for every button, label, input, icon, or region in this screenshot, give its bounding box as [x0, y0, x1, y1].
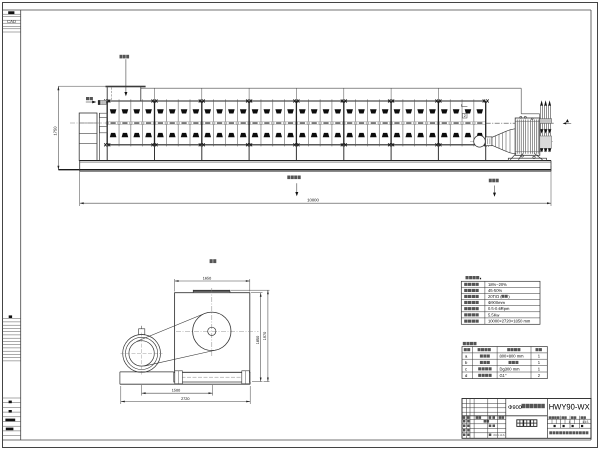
svg-text:10000: 10000	[307, 197, 319, 202]
svg-text:2720: 2720	[181, 397, 189, 401]
svg-text:1850: 1850	[256, 336, 260, 344]
svg-text:HWY90-WX: HWY90-WX	[549, 403, 591, 412]
svg-text:5.5Kw: 5.5Kw	[488, 312, 499, 317]
svg-text:1500: 1500	[172, 389, 180, 393]
svg-text:2: 2	[464, 114, 466, 118]
svg-text:800×800 mm: 800×800 mm	[500, 354, 525, 359]
svg-text:Φ900mm: Φ900mm	[488, 300, 506, 305]
svg-text:0.5-0.6Rpm: 0.5-0.6Rpm	[488, 306, 510, 311]
svg-text:1750: 1750	[53, 126, 58, 136]
svg-text:1: 1	[569, 420, 571, 424]
svg-text:CAD: CAD	[7, 19, 16, 24]
svg-text:20T/D: 20T/D	[488, 294, 499, 299]
svg-text:Dg300 mm: Dg300 mm	[500, 366, 521, 371]
svg-text:45-50%: 45-50%	[488, 288, 502, 293]
svg-text:1:15: 1:15	[582, 420, 588, 424]
svg-text:c: c	[465, 366, 467, 371]
svg-text:1650: 1650	[203, 276, 211, 280]
svg-text:2021.10.5: 2021.10.5	[493, 434, 505, 437]
svg-text:G1": G1"	[500, 373, 507, 378]
svg-text:18%~20%: 18%~20%	[488, 282, 507, 287]
svg-text:1970: 1970	[263, 332, 267, 340]
svg-text:10000×2720×1850 mm: 10000×2720×1850 mm	[488, 319, 531, 324]
svg-text:Φ900: Φ900	[508, 405, 522, 411]
